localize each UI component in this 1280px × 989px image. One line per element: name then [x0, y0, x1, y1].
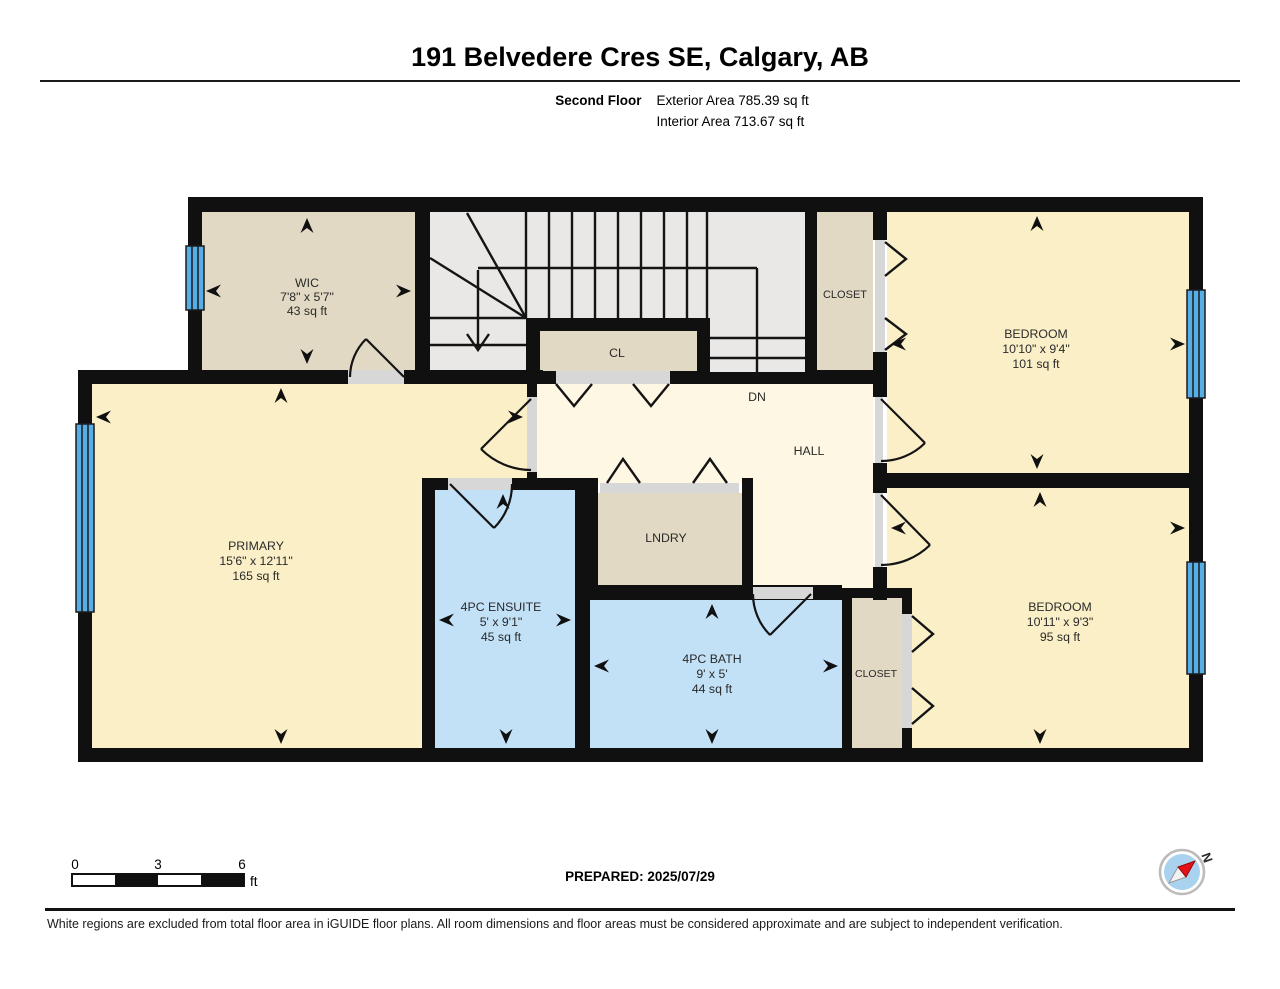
window [1187, 290, 1205, 398]
room-area-bath: 44 sq ft [692, 682, 733, 696]
room-primary-alcove [422, 384, 527, 478]
room-dims-bedroom-top: 10'10" x 9'4" [1002, 342, 1069, 356]
room-label-bath: 4PC BATH [682, 652, 741, 666]
room-area-bedroom-top: 101 sq ft [1012, 357, 1060, 371]
room-hall-lower [753, 483, 873, 588]
disclaimer-text: White regions are excluded from total fl… [47, 917, 1063, 931]
room-dims-bedroom-bottom: 10'11" x 9'3" [1027, 615, 1094, 629]
room-area-primary: 165 sq ft [232, 569, 280, 583]
footer-divider [45, 908, 1235, 911]
window [1187, 562, 1205, 674]
window [186, 246, 204, 310]
room-label-bedroom-top: BEDROOM [1004, 327, 1068, 341]
room-dims-primary: 15'6" x 12'11" [219, 554, 292, 568]
room-label-wic: WIC [295, 276, 319, 290]
room-label-ensuite: 4PC ENSUITE [461, 600, 542, 614]
floor-plan-drawing: WIC 7'8" x 5'7" 43 sq ft CL CLOSET BEDRO… [0, 0, 1280, 989]
room-hall-upper [537, 384, 873, 483]
window [76, 424, 94, 612]
room-area-wic: 43 sq ft [287, 304, 328, 318]
room-label-bedroom-bottom: BEDROOM [1028, 600, 1092, 614]
stairs-dn-label: DN [748, 390, 766, 404]
compass-n-label: N [1198, 851, 1215, 865]
room-label-lndry: LNDRY [645, 531, 686, 545]
room-label-closet-top: CLOSET [823, 289, 867, 301]
room-area-ensuite: 45 sq ft [481, 630, 522, 644]
room-label-closet-bottom: CLOSET [855, 668, 898, 680]
room-dims-wic: 7'8" x 5'7" [280, 290, 334, 304]
prepared-date: PREPARED: 2025/07/29 [0, 869, 1280, 884]
room-label-cl: CL [609, 346, 625, 360]
room-dims-ensuite: 5' x 9'1" [480, 615, 523, 629]
room-dims-bath: 9' x 5' [696, 667, 727, 681]
room-label-primary: PRIMARY [228, 539, 284, 553]
room-area-bedroom-bottom: 95 sq ft [1040, 630, 1081, 644]
floor-plan-page: 191 Belvedere Cres SE, Calgary, AB Secon… [0, 0, 1280, 989]
room-label-hall: HALL [794, 444, 825, 458]
